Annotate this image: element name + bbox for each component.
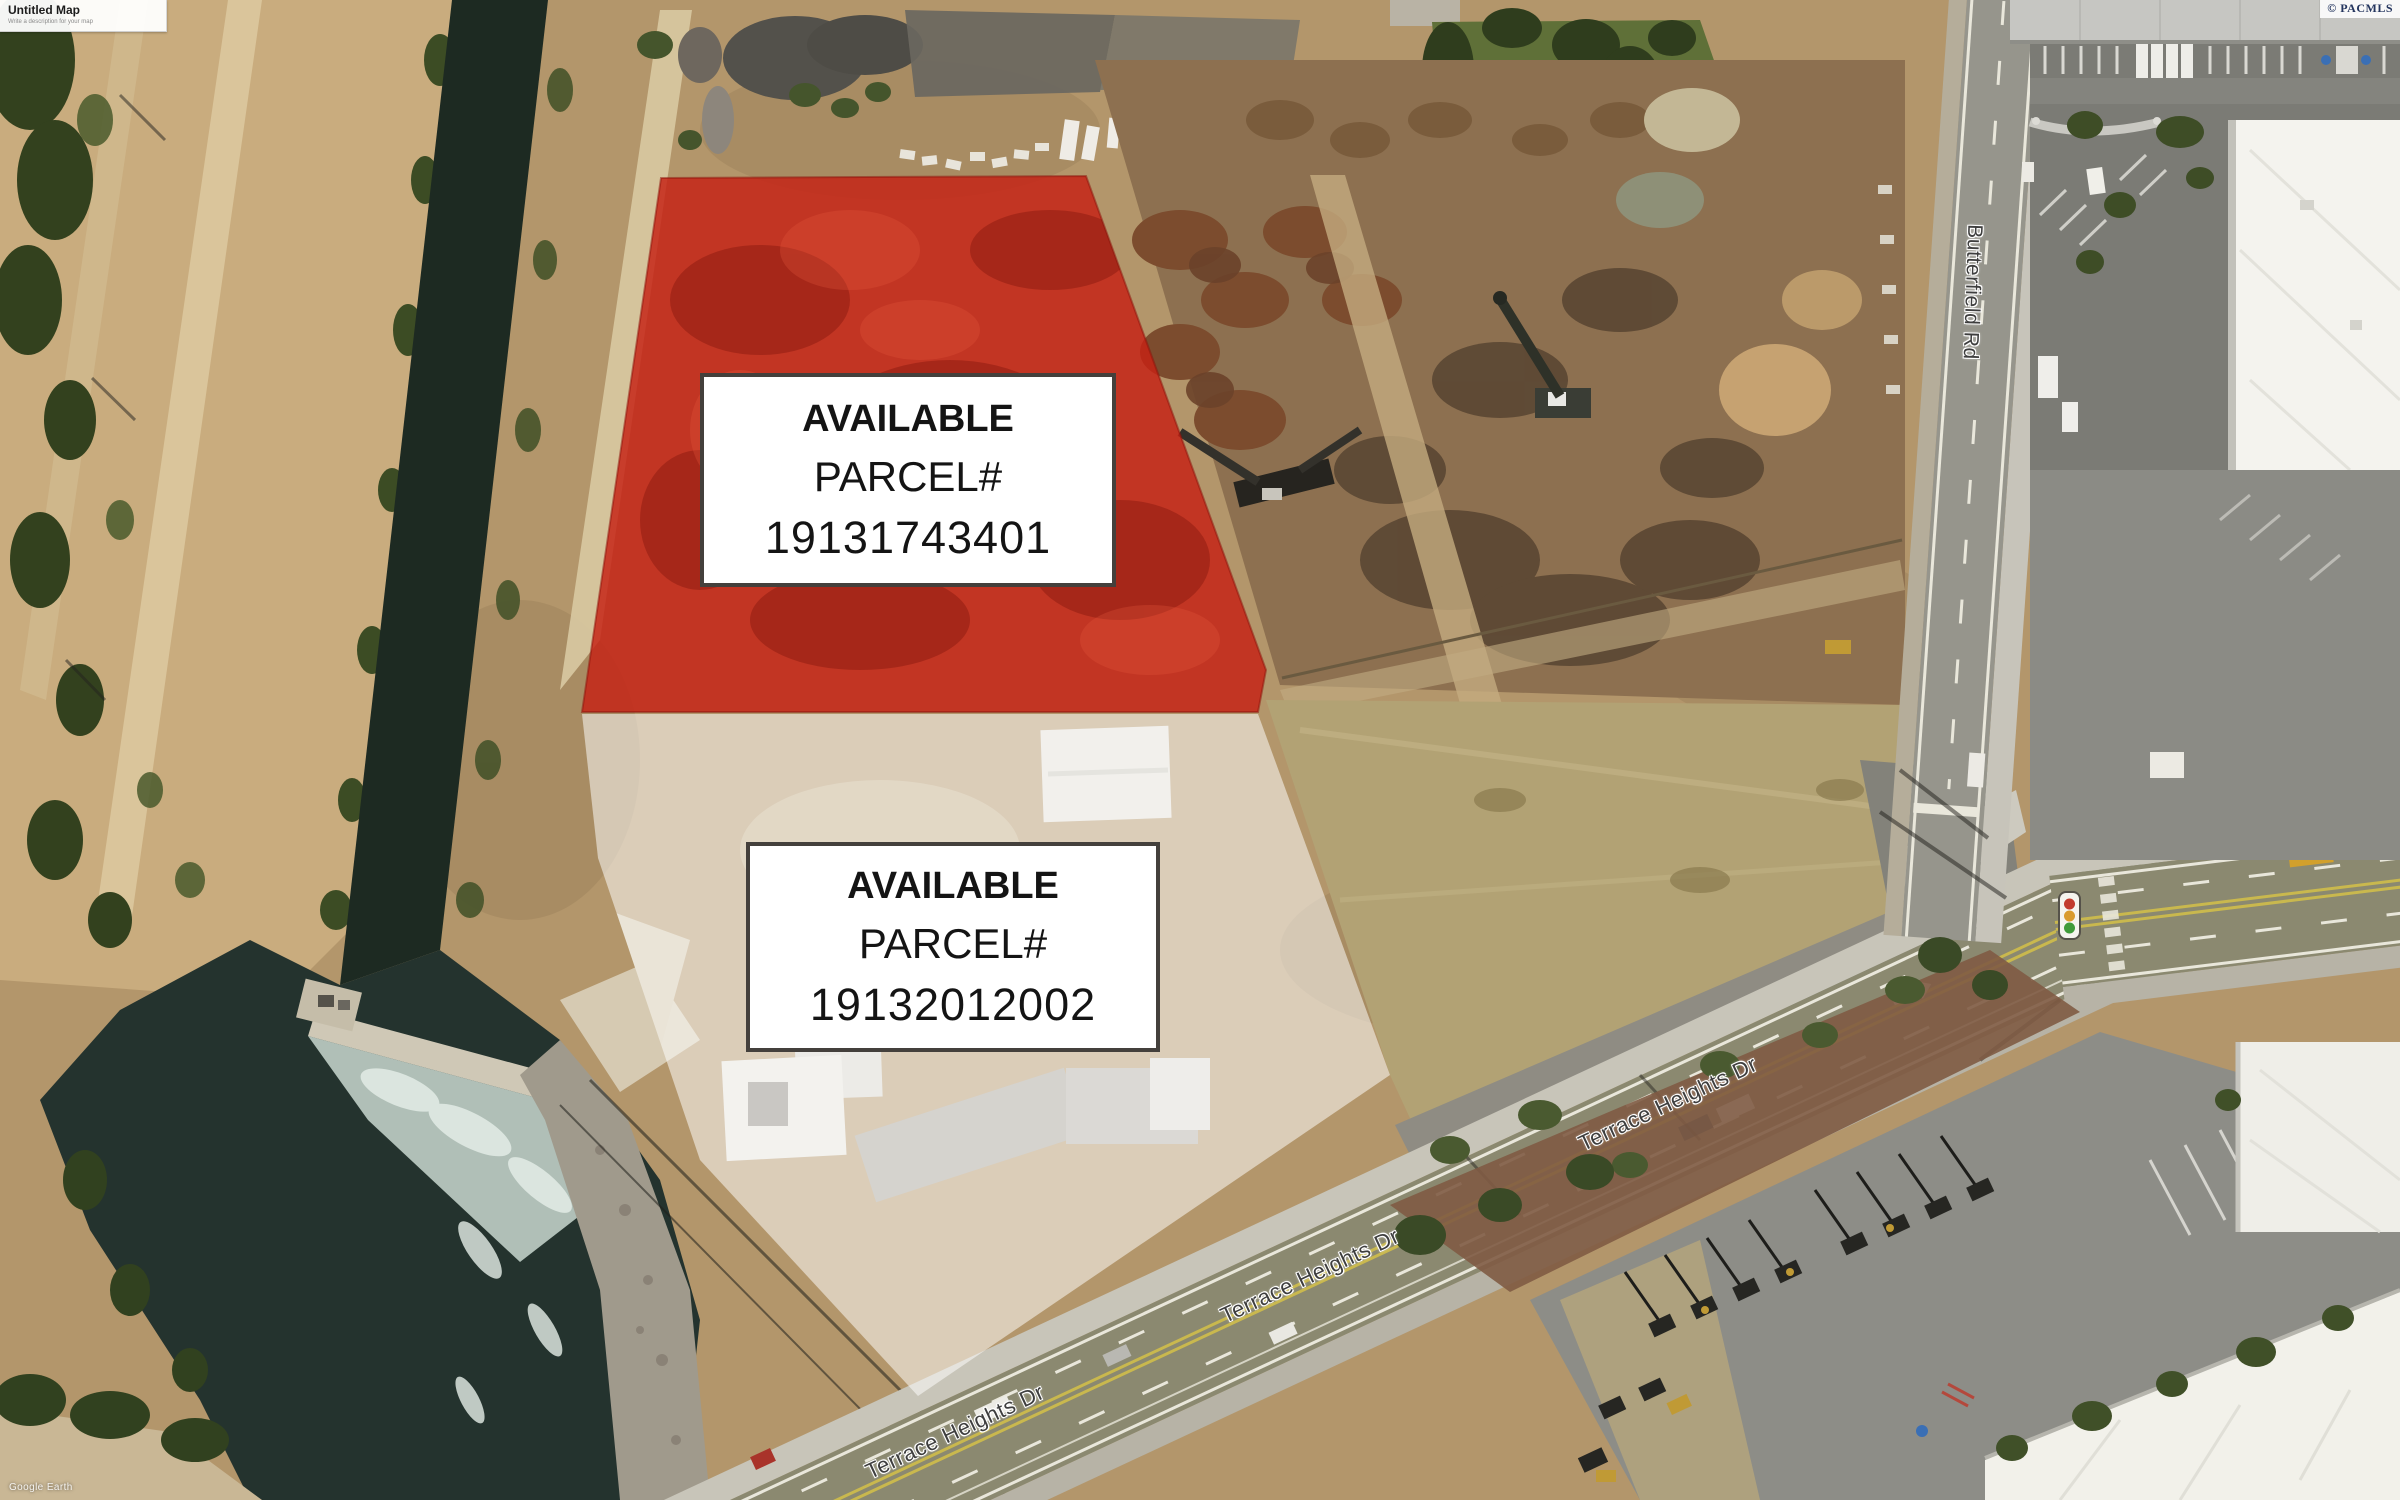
white-building-ne xyxy=(2228,120,2400,470)
parcel-sign-2[interactable]: AVAILABLE PARCEL# 19132012002 xyxy=(746,842,1160,1052)
parcel-number-label: PARCEL# xyxy=(859,914,1047,974)
box-truck xyxy=(2062,402,2078,432)
parcel-number-label: PARCEL# xyxy=(814,447,1002,507)
parcel-number-value: 19132012002 xyxy=(810,974,1096,1036)
box-truck xyxy=(2038,356,2058,398)
parcel-number-value: 19131743401 xyxy=(765,507,1051,569)
google-earth-watermark: Google Earth xyxy=(9,1482,73,1493)
loader xyxy=(1825,640,1851,654)
parcel-sign-1[interactable]: AVAILABLE PARCEL# 19131743401 xyxy=(700,373,1116,587)
parcel-status-label: AVAILABLE xyxy=(847,858,1059,914)
map-subtitle: Write a description for your map xyxy=(8,19,158,26)
road-label-butterfield: Butterfield Rd xyxy=(1958,224,1987,360)
aerial-imagery xyxy=(0,0,2400,1500)
map-title-card[interactable]: Untitled Map Write a description for you… xyxy=(0,0,167,32)
copyright-badge: © PACMLS xyxy=(2320,0,2400,18)
vehicle xyxy=(1967,752,1985,787)
traffic-signal-icon xyxy=(2059,892,2080,939)
map-canvas[interactable]: AVAILABLE PARCEL# 19131743401 AVAILABLE … xyxy=(0,0,2400,1500)
map-title: Untitled Map xyxy=(8,4,158,17)
parcel-status-label: AVAILABLE xyxy=(802,391,1014,447)
northeast-commercial xyxy=(2010,0,2400,860)
